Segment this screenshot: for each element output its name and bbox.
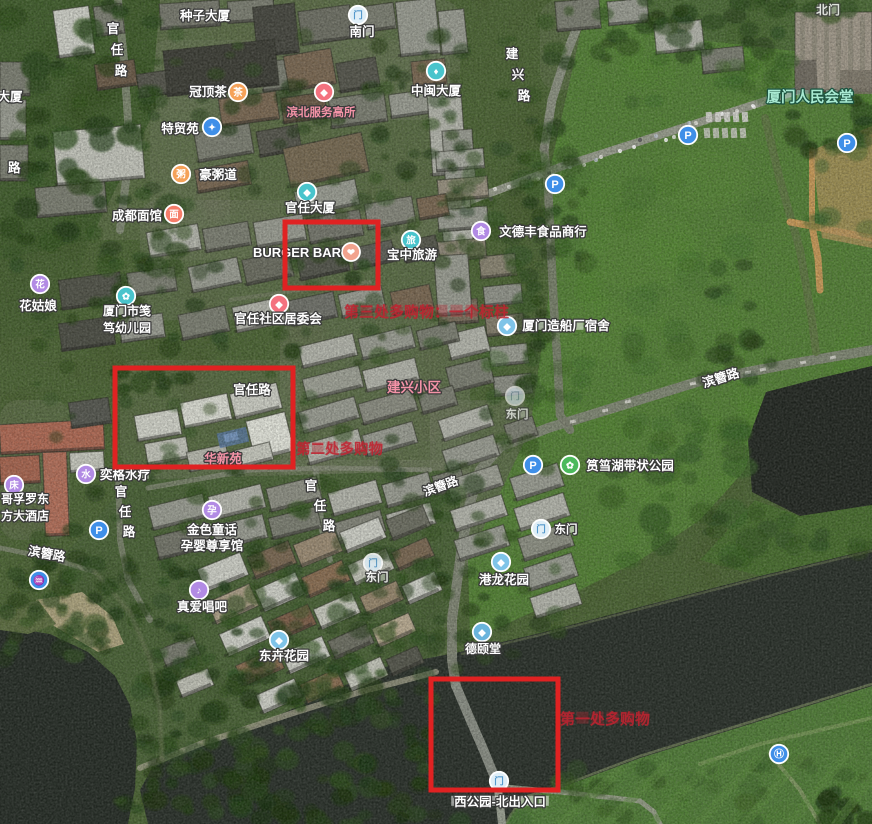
svg-text:方大酒店: 方大酒店 xyxy=(1,508,49,523)
svg-text:路: 路 xyxy=(123,524,136,539)
svg-text:✿: ✿ xyxy=(566,460,575,471)
svg-text:花姑娘: 花姑娘 xyxy=(19,298,57,313)
svg-text:Ⓗ: Ⓗ xyxy=(774,748,784,761)
svg-text:门: 门 xyxy=(536,523,546,535)
svg-text:宝中旅游: 宝中旅游 xyxy=(387,247,438,262)
svg-text:面: 面 xyxy=(169,209,179,220)
svg-text:旅: 旅 xyxy=(406,234,416,246)
svg-text:金色童话: 金色童话 xyxy=(186,522,238,537)
svg-text:✿: ✿ xyxy=(122,291,131,302)
svg-text:任: 任 xyxy=(313,498,327,513)
svg-text:第二处多购物: 第二处多购物 xyxy=(296,440,383,458)
svg-text:哥孚罗东: 哥孚罗东 xyxy=(1,491,49,506)
svg-text:建兴小区: 建兴小区 xyxy=(386,379,441,395)
svg-text:第三处多购物：一个标柱: 第三处多购物：一个标柱 xyxy=(344,303,509,321)
svg-text:厦门市笺: 厦门市笺 xyxy=(103,303,151,318)
svg-text:成都面馆: 成都面馆 xyxy=(112,208,162,223)
svg-text:东卉花园: 东卉花园 xyxy=(259,648,309,663)
svg-text:◆: ◆ xyxy=(477,627,486,638)
svg-text:南门: 南门 xyxy=(349,24,374,39)
svg-text:冠顶茶: 冠顶茶 xyxy=(189,84,227,99)
svg-text:路: 路 xyxy=(518,88,531,103)
svg-text:◆: ◆ xyxy=(274,635,283,646)
svg-text:筼筜湖带状公园: 筼筜湖带状公园 xyxy=(586,458,674,473)
svg-text:官任大厦: 官任大厦 xyxy=(285,200,336,215)
svg-text:♒: ♒ xyxy=(33,574,45,586)
svg-text:西公园-北出入口: 西公园-北出入口 xyxy=(454,794,546,809)
svg-text:花: 花 xyxy=(35,278,45,290)
svg-text:豪粥道: 豪粥道 xyxy=(199,167,237,182)
svg-text:食: 食 xyxy=(475,225,486,237)
svg-text:笃幼儿园: 笃幼儿园 xyxy=(102,320,151,335)
svg-text:厦门造船厂宿舍: 厦门造船厂宿舍 xyxy=(522,318,610,333)
svg-text:♪: ♪ xyxy=(197,585,202,596)
svg-text:兴: 兴 xyxy=(512,67,525,82)
svg-text:P: P xyxy=(684,130,691,142)
svg-text:门: 门 xyxy=(494,775,504,787)
svg-text:❤: ❤ xyxy=(347,247,356,258)
svg-text:文德丰食品商行: 文德丰食品商行 xyxy=(499,224,587,239)
svg-text:◆: ◆ xyxy=(502,321,511,332)
svg-text:水: 水 xyxy=(81,468,91,480)
svg-text:官: 官 xyxy=(115,484,128,499)
svg-text:✦: ✦ xyxy=(208,122,216,133)
svg-text:◆: ◆ xyxy=(302,187,311,198)
svg-text:P: P xyxy=(843,138,850,150)
svg-text:路: 路 xyxy=(8,160,21,175)
svg-text:官: 官 xyxy=(305,478,318,493)
svg-text:门: 门 xyxy=(510,390,520,402)
svg-text:种子大厦: 种子大厦 xyxy=(179,8,231,23)
svg-text:茶: 茶 xyxy=(232,86,243,98)
svg-text:德颐堂: 德颐堂 xyxy=(465,641,501,656)
svg-text:♦: ♦ xyxy=(434,66,439,77)
svg-text:门: 门 xyxy=(353,9,363,21)
svg-text:P: P xyxy=(95,525,102,537)
svg-text:中闽大厦: 中闽大厦 xyxy=(411,83,462,98)
svg-text:东门: 东门 xyxy=(555,522,578,536)
svg-text:路: 路 xyxy=(323,518,336,533)
svg-text:东门: 东门 xyxy=(366,570,389,584)
svg-text:孕: 孕 xyxy=(207,505,217,516)
svg-text:路: 路 xyxy=(115,63,128,78)
svg-text:◆: ◆ xyxy=(496,557,505,568)
svg-text:东门: 东门 xyxy=(506,407,529,421)
svg-text:滨北服务高所: 滨北服务高所 xyxy=(287,105,356,119)
svg-text:第一处多购物: 第一处多购物 xyxy=(560,710,650,728)
svg-text:任: 任 xyxy=(118,504,132,519)
svg-text:任: 任 xyxy=(110,42,124,57)
svg-text:P: P xyxy=(551,179,558,191)
svg-text:◆: ◆ xyxy=(274,299,283,310)
svg-text:官任社区居委会: 官任社区居委会 xyxy=(234,311,322,326)
svg-text:床: 床 xyxy=(9,479,19,491)
svg-text:官任路: 官任路 xyxy=(233,382,271,397)
svg-text:厦门人民会堂: 厦门人民会堂 xyxy=(767,88,854,106)
svg-text:孕婴尊享馆: 孕婴尊享馆 xyxy=(181,538,244,553)
svg-text:真爱唱吧: 真爱唱吧 xyxy=(177,599,228,614)
svg-text:建: 建 xyxy=(506,46,519,61)
svg-text:BURGER BAR: BURGER BAR xyxy=(253,245,342,260)
svg-text:门: 门 xyxy=(368,557,378,569)
svg-text:P: P xyxy=(529,460,536,472)
svg-text:港龙花园: 港龙花园 xyxy=(479,572,529,587)
svg-text:北门: 北门 xyxy=(816,2,840,17)
svg-text:官: 官 xyxy=(107,21,120,36)
svg-text:特贸苑: 特贸苑 xyxy=(161,121,199,136)
svg-text:粥: 粥 xyxy=(176,168,186,180)
svg-text:◆: ◆ xyxy=(319,87,328,98)
svg-text:大厦: 大厦 xyxy=(0,89,23,104)
svg-text:华新苑: 华新苑 xyxy=(204,451,242,466)
